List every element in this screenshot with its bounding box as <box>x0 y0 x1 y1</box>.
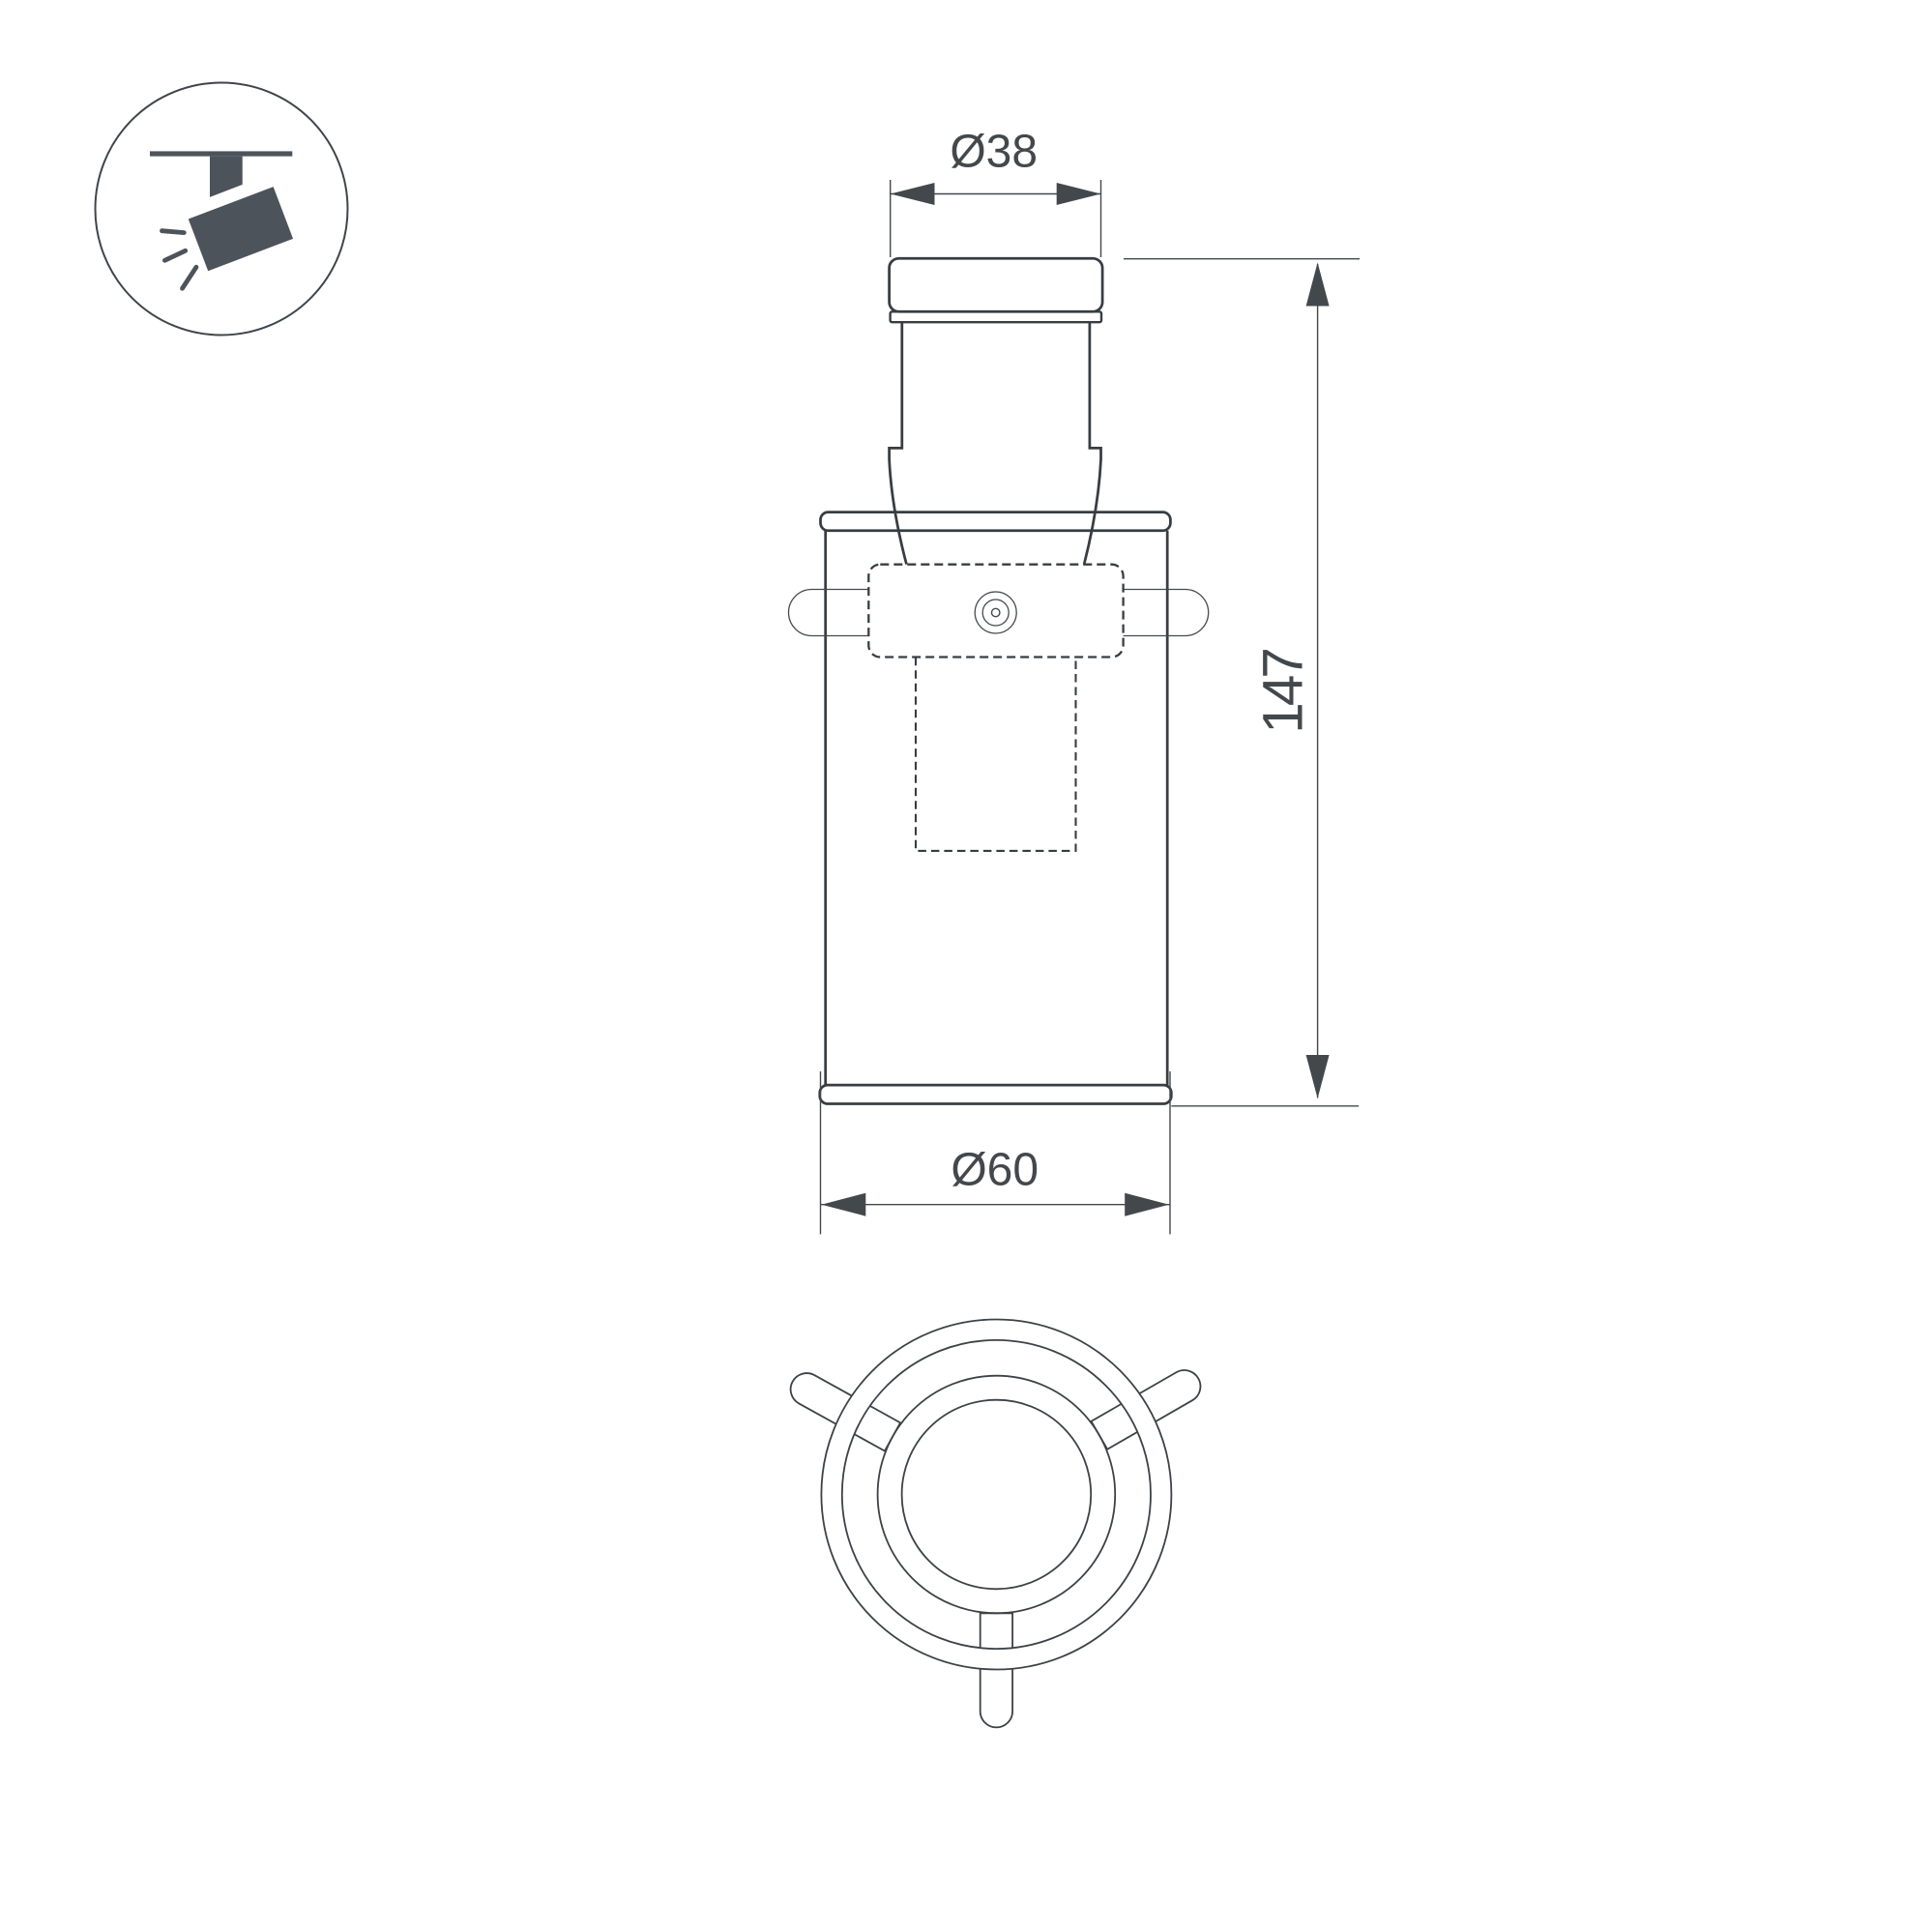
svg-text:Ø60: Ø60 <box>951 1145 1039 1196</box>
svg-text:Ø38: Ø38 <box>950 127 1038 178</box>
svg-text:147: 147 <box>1251 650 1314 734</box>
